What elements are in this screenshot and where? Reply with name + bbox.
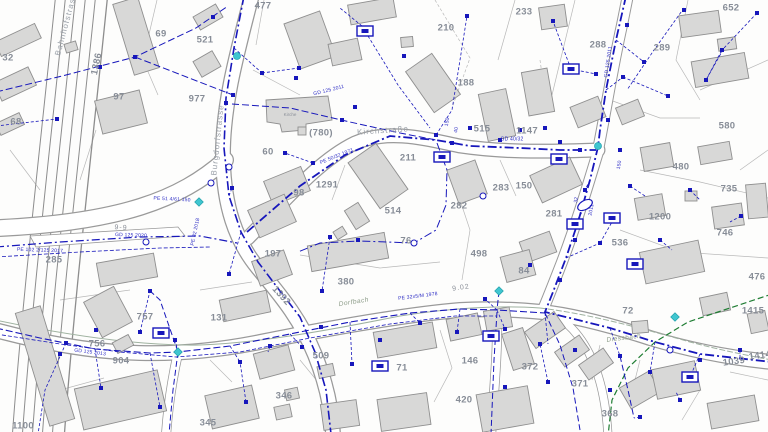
parcel-number-label: 580: [719, 121, 736, 131]
parcel-number-label: 372: [522, 362, 539, 372]
parcel-number-label: 283: [493, 183, 510, 193]
parcel-number-label: 420: [456, 395, 473, 405]
parcel-number-label: 371: [572, 379, 589, 389]
parcel-number-label: 368: [602, 409, 619, 419]
pipe-annotation-label: GD 125 2011: [604, 46, 613, 78]
pipe-annotation-label: PE 51 4/61 150: [153, 197, 190, 204]
parcel-number-label: 757: [137, 312, 154, 322]
parcel-number-label: 285: [46, 255, 63, 265]
parcel-number-label: 536: [612, 238, 629, 248]
parcel-number-label: 509: [313, 351, 330, 361]
building-name-label: Kirche: [284, 113, 297, 118]
street-name-label: Bahnhofstrasse: [54, 0, 80, 57]
parcel-number-label: 197: [265, 249, 282, 259]
pipe-annotation-label: 40: [454, 127, 460, 134]
parcel-number-label: 1414: [748, 350, 768, 363]
pipe-annotation-label: PE 32 2018: [191, 218, 202, 247]
parcel-number-label: 514: [385, 206, 402, 216]
parcel-number-label: 211: [400, 153, 416, 163]
label-overlay: 326869521477979771386233652210288289188(…: [0, 0, 768, 432]
parcel-number-label: 150: [516, 181, 533, 191]
pipe-annotation-label: 2011: [589, 204, 596, 216]
road-measure-label: 9-9: [114, 224, 127, 232]
parcel-number-label: 131: [211, 313, 228, 323]
stream-name-label: Dorfbach: [338, 297, 369, 308]
parcel-number-label: 977: [189, 94, 206, 104]
parcel-number-label: 345: [200, 418, 217, 428]
parcel-number-label: 69: [155, 29, 166, 39]
parcel-number-label: 76: [400, 236, 411, 246]
parcel-number-label: 380: [338, 277, 355, 287]
street-name-label: Burgdorfstrasse: [210, 104, 225, 176]
parcel-number-label: 68: [10, 117, 21, 127]
parcel-number-label: 1100: [12, 421, 34, 431]
parcel-number-label: 1386: [90, 52, 104, 76]
parcel-number-label: 476: [749, 272, 766, 282]
parcel-number-label: 477: [255, 1, 272, 11]
parcel-number-label: 521: [197, 35, 214, 45]
parcel-number-label: 210: [438, 23, 455, 33]
parcel-number-label: 71: [396, 363, 407, 373]
parcel-number-label: 72: [622, 306, 633, 316]
pipe-annotation-label: GD 125 2020: [115, 233, 147, 239]
parcel-number-label: 480: [673, 162, 690, 172]
pipe-annotation-label: 32: [574, 197, 580, 204]
parcel-number-label: 60: [262, 147, 273, 157]
parcel-number-label: 1147: [516, 126, 538, 136]
pipe-annotation-label: 150: [617, 160, 623, 170]
parcel-number-label: 281: [546, 209, 563, 219]
gis-map-canvas[interactable]: 326869521477979771386233652210288289188(…: [0, 0, 768, 432]
parcel-number-label: 32: [2, 53, 13, 63]
road-measure-label: 9.02: [452, 283, 470, 292]
pipe-annotation-label: PE 32x5/M 1978: [398, 292, 438, 302]
parcel-number-label: 515: [474, 124, 491, 134]
parcel-number-label: 756: [89, 339, 106, 349]
pipe-annotation-label: PE 102 2/125 2017: [17, 248, 63, 255]
parcel-number-label: 188: [458, 78, 475, 88]
parcel-number-label: 1291: [316, 180, 338, 190]
parcel-number-label: 282: [451, 201, 468, 211]
pipe-annotation-label: GD 40/32: [500, 138, 523, 143]
street-name-label: Kirchstraße: [357, 125, 409, 137]
parcel-number-label: 1392: [270, 285, 292, 308]
parcel-number-label: 346: [276, 391, 293, 401]
parcel-number-label: 84: [518, 266, 529, 276]
pipe-annotation-label: 150: [445, 117, 451, 127]
parcel-number-label: 498: [471, 249, 488, 259]
parcel-number-label: 289: [654, 43, 671, 53]
parcel-number-label: 746: [717, 228, 734, 238]
parcel-number-label: 904: [113, 356, 130, 366]
parcel-number-label: 1039: [722, 356, 745, 369]
parcel-number-label: 1200: [649, 212, 671, 222]
parcel-number-label: 1415: [742, 306, 764, 316]
parcel-number-label: 652: [723, 3, 740, 13]
parcel-number-label: 98: [293, 188, 304, 198]
parcel-number-label: 233: [516, 7, 533, 17]
parcel-number-label: 146: [462, 356, 479, 366]
parcel-number-label: 288: [590, 40, 607, 50]
parcel-number-label: 735: [721, 184, 738, 194]
pipe-annotation-label: PE 50/32 1971: [320, 148, 355, 166]
pipe-annotation-label: GD 125 2011: [313, 85, 345, 97]
parcel-number-label: 97: [113, 92, 124, 102]
pipe-annotation-label: GD 125 2013: [74, 349, 106, 358]
stream-name-label: Diessbach: [606, 334, 641, 345]
parcel-number-label: (780): [309, 128, 333, 138]
